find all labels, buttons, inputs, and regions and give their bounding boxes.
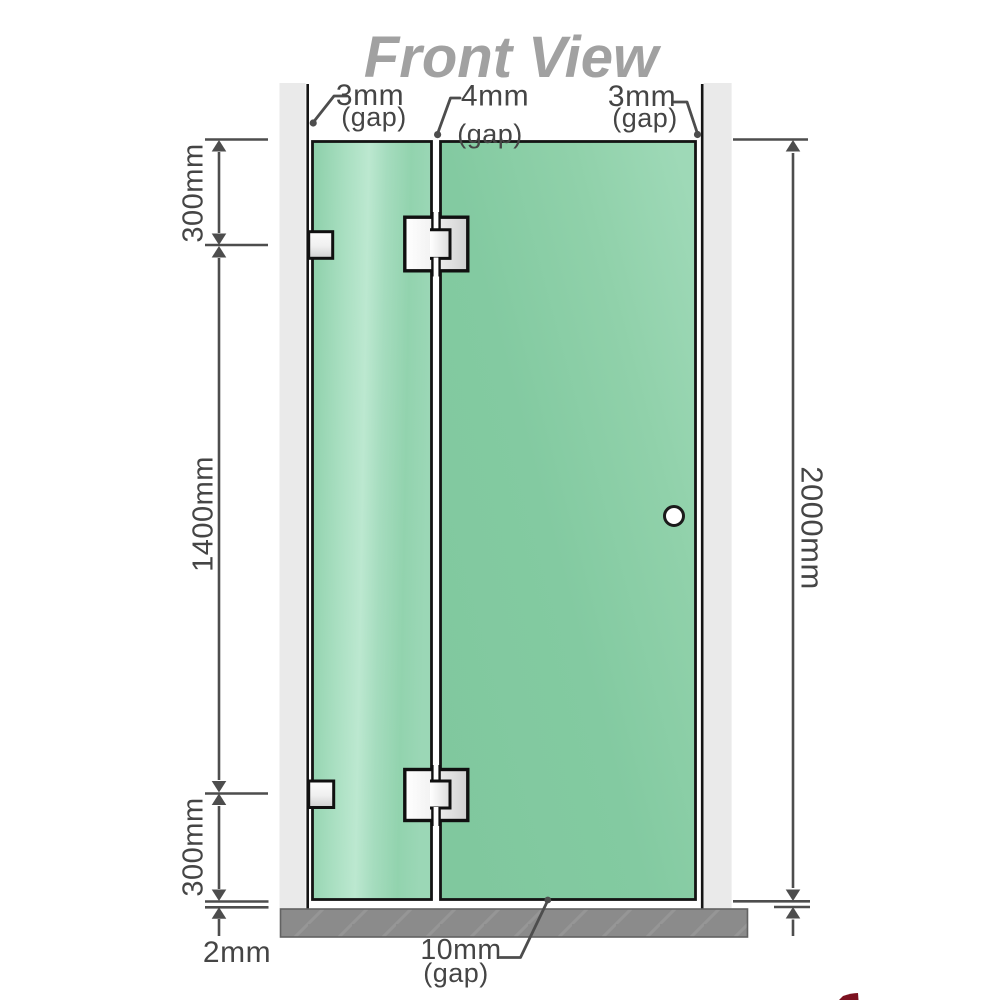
svg-text:1400mm: 1400mm — [188, 456, 220, 572]
svg-text:(gap): (gap) — [612, 103, 678, 133]
svg-text:300mm: 300mm — [178, 143, 210, 242]
svg-text:(gap): (gap) — [423, 958, 489, 988]
svg-text:4mm: 4mm — [461, 80, 529, 113]
svg-text:(gap): (gap) — [457, 119, 523, 149]
svg-text:(gap): (gap) — [341, 102, 407, 132]
svg-text:300mm: 300mm — [178, 797, 210, 896]
svg-text:2000mm: 2000mm — [795, 466, 830, 590]
svg-text:2mm: 2mm — [203, 936, 271, 969]
